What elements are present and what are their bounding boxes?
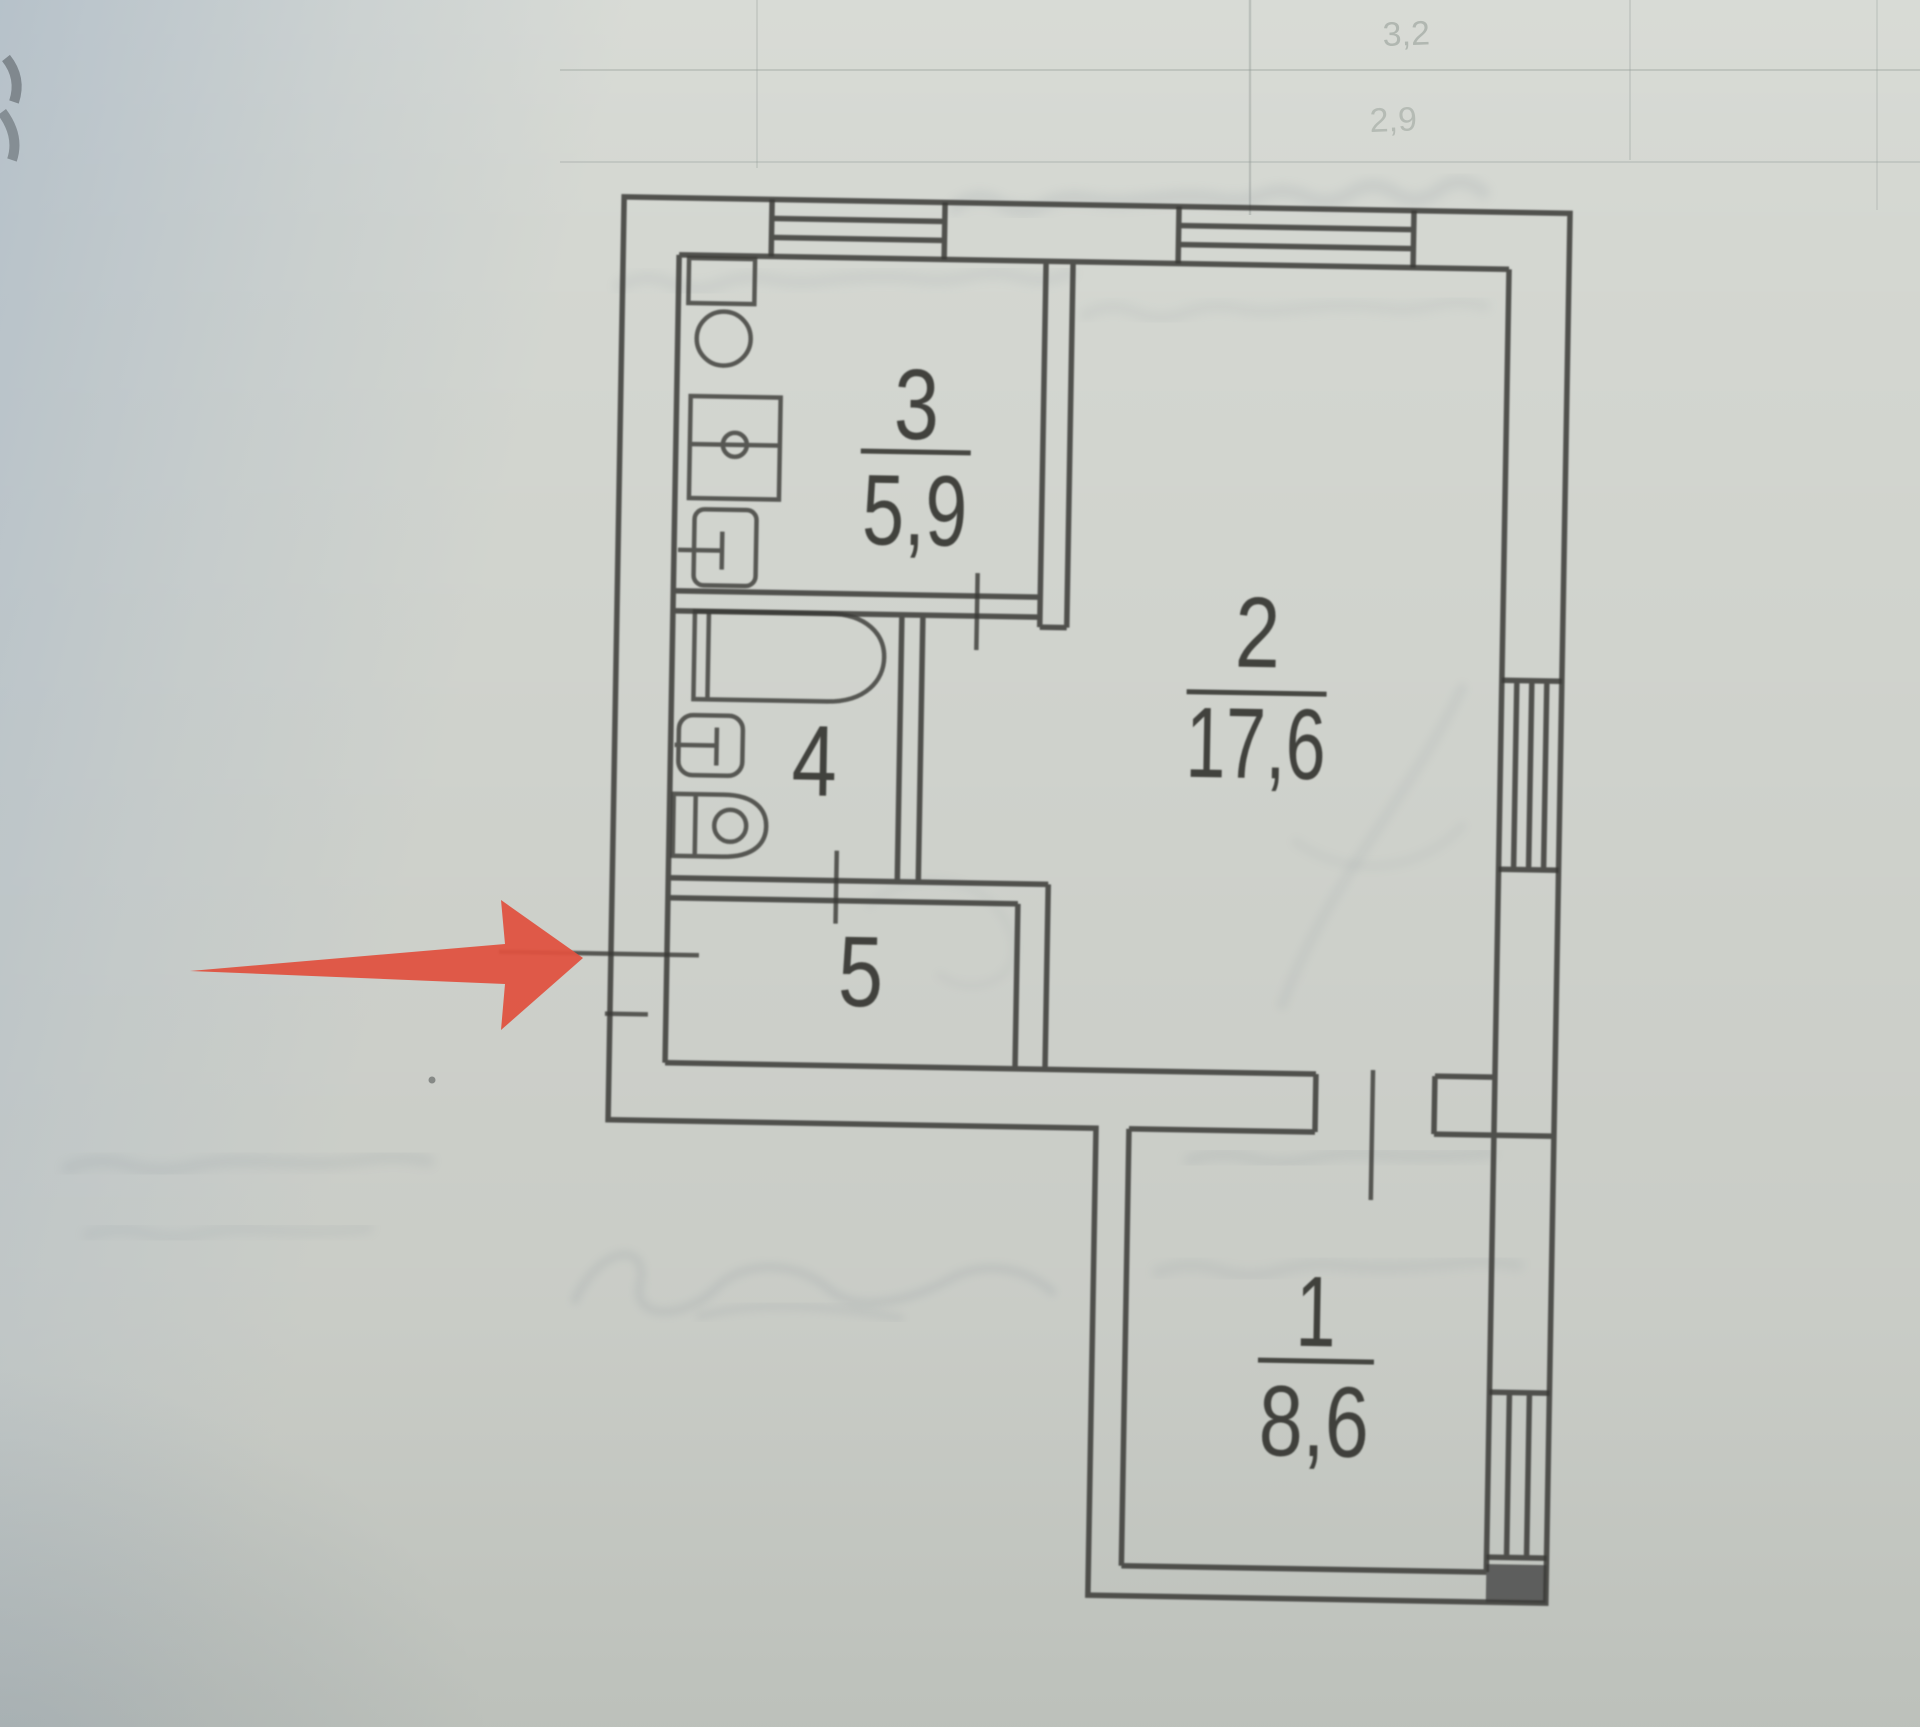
room-1-label: 1 8,6 [1256, 1255, 1376, 1479]
bathroom-fixtures [673, 611, 885, 860]
wall-hall-room2 [1015, 884, 1048, 1069]
bathtub-icon [693, 611, 885, 702]
room1-door-tick [1371, 1070, 1373, 1200]
wall-room3-room2 [1040, 261, 1073, 627]
bleed-number-2: 2,9 [1369, 100, 1418, 140]
window-top-right-icon [1178, 207, 1414, 268]
room-3-label: 3 5,9 [859, 348, 973, 568]
inner-top-wall-line [679, 255, 1509, 269]
window-right-room1-icon [1486, 1392, 1550, 1603]
walls [600, 197, 1570, 1603]
window-top-pier [1178, 207, 1179, 264]
inner-right-wall-line [1486, 269, 1509, 1572]
toilet-icon [673, 794, 767, 858]
wall-bath-right [897, 615, 923, 882]
room-2-area: 17,6 [1185, 687, 1327, 801]
room-1-fraction-line [1258, 1360, 1374, 1362]
room1-inner-bottom [1121, 1566, 1486, 1572]
kitchen-door-tick [976, 573, 977, 650]
room-5-number: 5 [837, 916, 884, 1029]
kitchen-round-sink-icon [696, 311, 751, 366]
room-2-label: 2 17,6 [1185, 576, 1329, 801]
room-3-number: 3 [893, 349, 940, 462]
room-2-number: 2 [1234, 577, 1281, 690]
bleed-number-1: 3,2 [1382, 14, 1431, 54]
window-top-left-icon [771, 199, 945, 259]
page-edge-marks [2, 58, 436, 1084]
room-4-label: 4 [791, 705, 838, 818]
window-right-room2-icon [1499, 680, 1562, 870]
bottom-band-lower-line [1129, 1129, 1554, 1136]
plan-drawing: 3 5,9 2 17,6 4 5 1 8,6 [488, 195, 1570, 1603]
room-3-fraction-line [861, 451, 971, 453]
room-1-number: 1 [1295, 1256, 1337, 1369]
floor-plan-svg: 3,2 2,9 [0, 0, 1920, 1727]
stove-icon [689, 396, 781, 500]
bathroom-door-tick [836, 851, 837, 924]
inner-bottom-wall-line [665, 1063, 1495, 1077]
bathroom-sink-icon [674, 715, 743, 776]
room-5-label: 5 [837, 916, 884, 1029]
kitchen-fixtures [677, 258, 783, 587]
room-3-area: 5,9 [861, 454, 968, 568]
bleed-through-layer: 3,2 2,9 [2, 0, 1920, 1318]
inner-left-wall-line [665, 255, 679, 1063]
room-4-number: 4 [791, 705, 838, 818]
faint-table-grid [560, 0, 1920, 215]
room-1-area: 8,6 [1258, 1365, 1370, 1479]
scanned-page: 3,2 2,9 [0, 0, 1920, 1727]
room1-inner-left [1121, 1129, 1129, 1566]
kitchen-sink-icon [677, 509, 756, 586]
red-arrow-icon [190, 900, 583, 1030]
